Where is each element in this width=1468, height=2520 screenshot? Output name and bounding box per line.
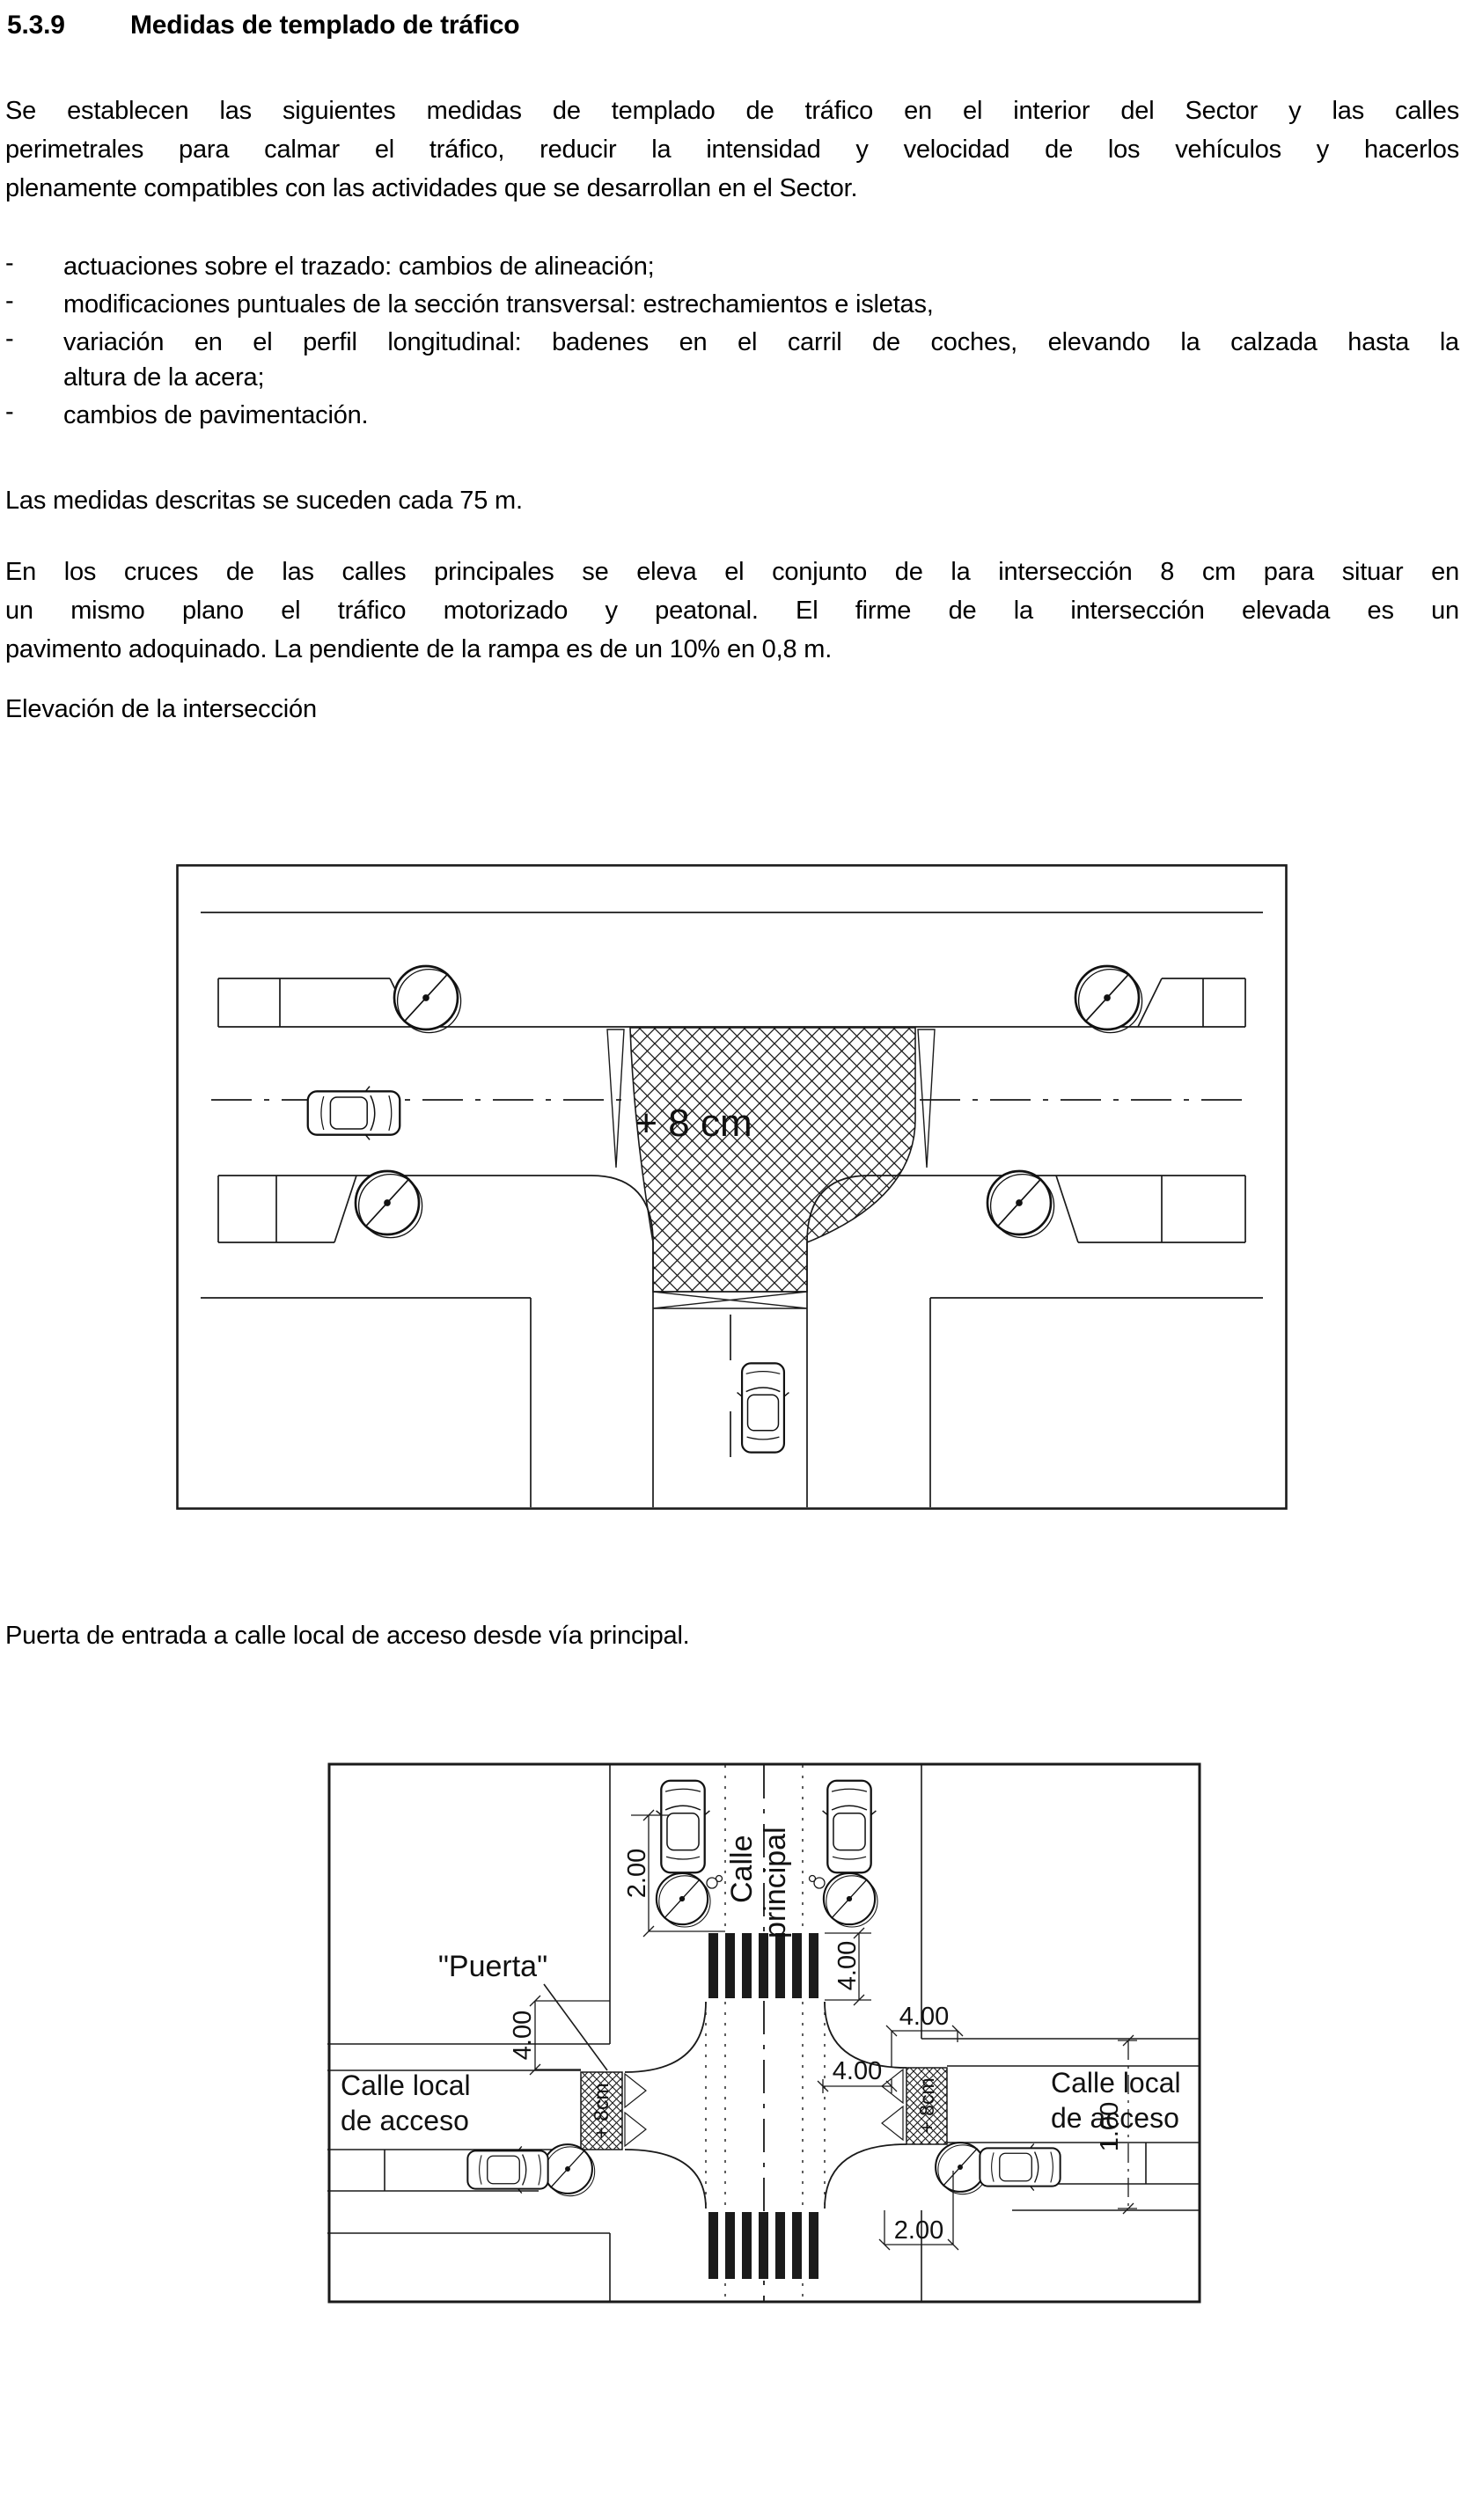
list-item: - cambios de pavimentación. xyxy=(5,398,1459,433)
list-item: - modificaciones puntuales de la sección… xyxy=(5,287,1459,322)
paragraph-intersection: En los cruces de las calles principales … xyxy=(5,553,1459,669)
text-line: En los cruces de las calles principales … xyxy=(5,553,1459,591)
bullet-marker: - xyxy=(5,398,63,433)
paragraph-intro: Se establecen las siguientes medidas de … xyxy=(5,92,1459,208)
section-heading: 5.3.9Medidas de templado de tráfico xyxy=(7,11,519,40)
local-street-left-line2: de acceso xyxy=(341,2105,469,2136)
bullet-text: variación en el perfil longitudinal: bad… xyxy=(63,325,1459,395)
crosswalk-bottom xyxy=(708,2212,818,2279)
text-line: variación en el perfil longitudinal: bad… xyxy=(63,325,1459,360)
figure-elevated-intersection: + 8 cm xyxy=(176,864,1288,1510)
gate-elevation-label: + 8cm xyxy=(590,2083,613,2138)
bullet-marker: - xyxy=(5,249,63,284)
car-icon xyxy=(657,1781,710,1873)
section-number: 5.3.9 xyxy=(7,11,130,40)
text-line: un mismo plano el tráfico motorizado y p… xyxy=(5,591,1459,630)
dim-label: 4.00 xyxy=(899,2003,949,2031)
gate-leader-line xyxy=(544,1984,607,2070)
local-street-left-line1: Calle local xyxy=(341,2069,471,2101)
tree-icon xyxy=(394,966,461,1033)
local-street-right-line2: de acceso xyxy=(1051,2102,1179,2134)
tree-icon xyxy=(824,1873,877,1927)
figure2-caption: Puerta de entrada a calle local de acces… xyxy=(5,1620,1459,1652)
figure1-caption: Elevación de la intersección xyxy=(5,693,1459,725)
document-page: { "page": { "section_number": "5.3.9", "… xyxy=(0,0,1468,2520)
tree-icon xyxy=(987,1171,1054,1238)
gate-left: + 8cm xyxy=(581,2072,646,2150)
text-line: Se establecen las siguientes medidas de … xyxy=(5,92,1459,130)
raised-intersection-hatch xyxy=(630,1028,915,1292)
raised-area-label: + 8 cm xyxy=(635,1102,752,1145)
dim-label: 4.00 xyxy=(833,1941,862,1990)
text-line: actuaciones sobre el trazado: cambios de… xyxy=(63,249,1459,284)
bullet-list: - actuaciones sobre el trazado: cambios … xyxy=(5,249,1459,436)
tree-icon xyxy=(543,2144,595,2196)
text-line: plenamente compatibles con las actividad… xyxy=(5,169,1459,208)
dim-label: 2.00 xyxy=(623,1849,651,1898)
text-line: cambios de pavimentación. xyxy=(63,398,1459,433)
text-line: pavimento adoquinado. La pendiente de la… xyxy=(5,630,1459,669)
car-icon xyxy=(308,1087,400,1140)
gate-elevation-label: + 8cm xyxy=(915,2077,938,2133)
paragraph-measures-75m: Las medidas descritas se suceden cada 75… xyxy=(5,485,1459,516)
gate-name-label: "Puerta" xyxy=(438,1950,547,1983)
text-line: altura de la acera; xyxy=(63,360,1459,395)
tree-icon xyxy=(657,1873,710,1927)
bullet-text: cambios de pavimentación. xyxy=(63,398,1459,433)
crosswalk-top xyxy=(708,1933,818,1998)
tree-icon xyxy=(1075,966,1142,1033)
figure-gate-plan: + 8cm + 8cm 2.00 4.00 4.00 4.00 4.00 2.0… xyxy=(327,1762,1201,2304)
bullet-text: modificaciones puntuales de la sección t… xyxy=(63,287,1459,322)
dim-label: 4.00 xyxy=(833,2057,882,2085)
section-title: Medidas de templado de tráfico xyxy=(130,11,519,40)
bullet-text: actuaciones sobre el trazado: cambios de… xyxy=(63,249,1459,284)
local-street-right-line1: Calle local xyxy=(1051,2067,1181,2099)
car-icon xyxy=(467,2146,547,2193)
text-line: modificaciones puntuales de la sección t… xyxy=(63,287,1459,322)
list-item: - variación en el perfil longitudinal: b… xyxy=(5,325,1459,395)
bullet-marker: - xyxy=(5,325,63,395)
list-item: - actuaciones sobre el trazado: cambios … xyxy=(5,249,1459,284)
text-line: perimetrales para calmar el tráfico, red… xyxy=(5,130,1459,169)
dim-label: 4.00 xyxy=(509,2011,537,2060)
car-icon xyxy=(980,2143,1060,2190)
dim-label: 2.00 xyxy=(894,2216,943,2245)
bullet-marker: - xyxy=(5,287,63,322)
car-icon xyxy=(823,1781,877,1873)
main-street-label-line1: Calle xyxy=(725,1835,759,1903)
tree-icon xyxy=(356,1171,422,1238)
main-street-label-line2: principal xyxy=(759,1827,792,1938)
car-icon xyxy=(738,1363,789,1452)
